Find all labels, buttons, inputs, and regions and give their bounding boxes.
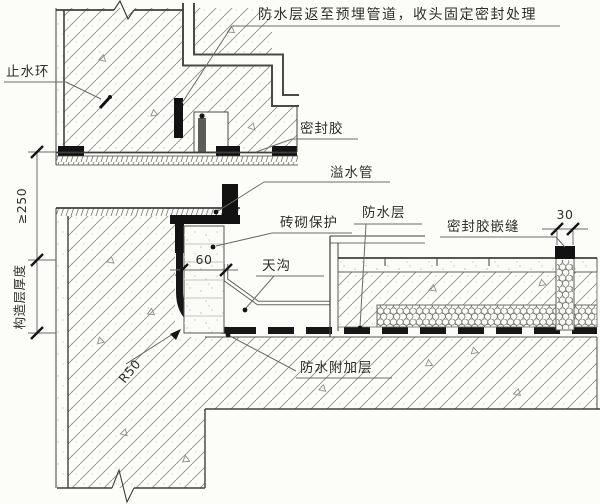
label-gutter: 天沟 [262, 258, 291, 274]
dimension-30: 30 [542, 207, 588, 245]
detail-drawing-canvas: ≥250 构造层厚度 60 30 R50 防水层返至预埋管道，收头固定密封处理 … [0, 0, 600, 504]
membrane-termination-right [272, 146, 297, 156]
sealant-cap [555, 246, 575, 259]
label-waterproof-additional: 防水附加层 [300, 360, 373, 376]
dim-brick-width: 60 [196, 252, 213, 267]
dim-joint-width: 30 [557, 207, 574, 222]
label-waterproof-layer: 防水层 [362, 205, 406, 221]
label-overflow-pipe: 溢水管 [330, 165, 374, 181]
structural-slab-hatch [175, 337, 597, 488]
waterproofing-detail-drawing: ≥250 构造层厚度 60 30 R50 防水层返至预埋管道，收头固定密封处理 … [0, 0, 600, 504]
sealant-caulk-joint [555, 246, 575, 330]
brick-protection-wall [184, 226, 224, 333]
wall-top-screed-band [56, 208, 240, 216]
dim-upturn-height: ≥250 [14, 188, 29, 224]
soffit-plaster-band [56, 156, 298, 165]
membrane-termination-left [58, 146, 84, 156]
label-sealant-caulk-joint: 密封胶嵌缝 [447, 218, 520, 235]
label-sealant: 密封胶 [300, 120, 344, 137]
dim-construction-thickness: 构造层厚度 [12, 264, 27, 329]
label-pipe-seal-note: 防水层返至预埋管道，收头固定密封处理 [258, 6, 537, 23]
parapet-wall-hatch [68, 216, 175, 488]
membrane-upstand-top [175, 215, 184, 253]
plaster-strip [56, 10, 64, 156]
label-brick-protection: 砖砌保护 [280, 215, 338, 231]
label-water-stop-ring: 止水环 [6, 64, 50, 80]
upper-detail-pipe-penetration [56, 0, 300, 165]
pipe-sleeve [198, 118, 206, 152]
membrane-termination-mid [216, 146, 240, 156]
dimension-left-stack: ≥250 构造层厚度 [12, 146, 56, 339]
wall-plaster-strip [56, 208, 68, 488]
